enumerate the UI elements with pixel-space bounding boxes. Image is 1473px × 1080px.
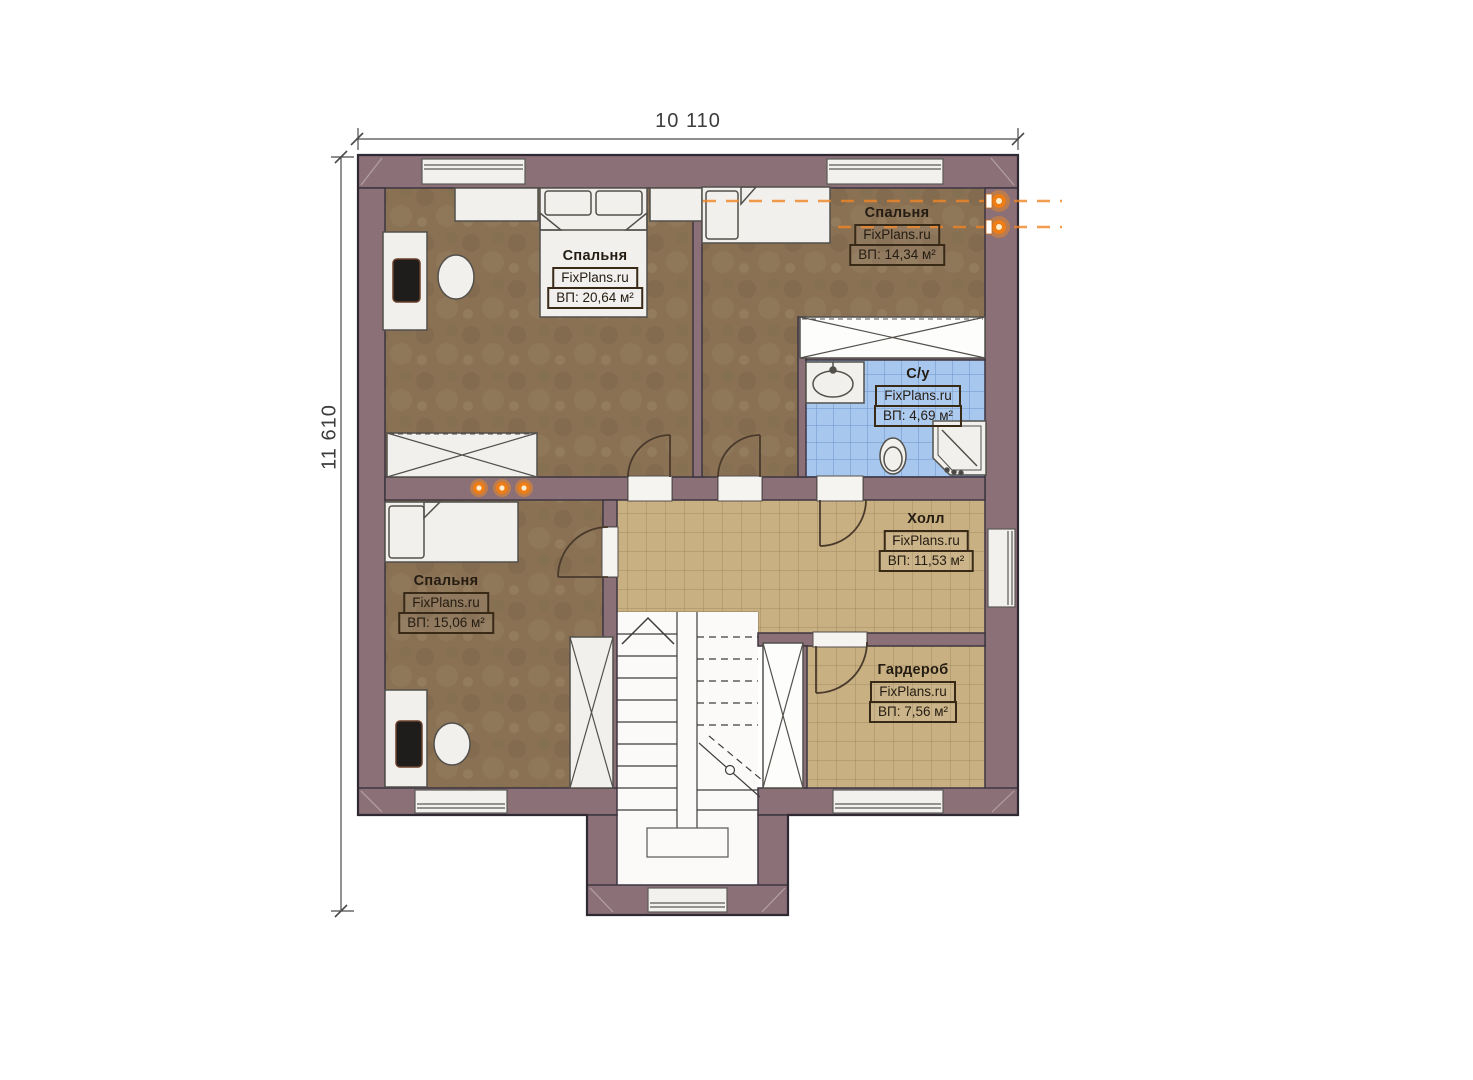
wardrobe-tl [387, 433, 537, 477]
floor-plan-page: 10 110 11 610 Спальня FixPlans.ru ВП: 20… [0, 0, 1473, 1080]
ceiling-light-3 [515, 479, 533, 497]
bed-single-bl [385, 502, 518, 562]
brand-watermark: FixPlans.ru [870, 681, 956, 703]
brand-watermark: FixPlans.ru [552, 267, 638, 289]
closet-tr [800, 317, 985, 358]
door-opening-bedroom-tl [628, 476, 672, 501]
door-opening-bedroom-tr [718, 476, 762, 501]
room-area: ВП: 15,06 м² [398, 612, 494, 634]
room-name: Спальня [865, 205, 930, 221]
wall-hall-bottom-b [867, 633, 985, 646]
bathroom-sink [806, 362, 864, 403]
brand-watermark: FixPlans.ru [403, 592, 489, 614]
floor-plan-drawing [0, 0, 1473, 1080]
room-name: С/у [906, 366, 929, 382]
window-top-1 [422, 159, 525, 184]
office-chair-tl [393, 259, 420, 302]
dresser-tl-left [455, 188, 538, 221]
door-opening-bedroom-bl [602, 527, 618, 577]
dimension-top-label: 10 110 [655, 110, 721, 133]
ceiling-light-2 [493, 479, 511, 497]
room-area: ВП: 14,34 м² [849, 244, 945, 266]
dresser-tl-right [650, 188, 702, 221]
room-area: ВП: 11,53 м² [879, 550, 974, 572]
door-opening-bathroom [817, 476, 863, 501]
dimension-left-label: 11 610 [319, 404, 342, 470]
office-chair-bl [396, 721, 422, 767]
toilet [880, 438, 906, 474]
bed-single-tr [702, 187, 830, 243]
room-name: Холл [907, 511, 945, 527]
door-opening-wardrobe [813, 632, 867, 647]
room-area: ВП: 20,64 м² [547, 287, 643, 309]
wall-mid-seg2 [672, 477, 718, 500]
floor-stairwell [617, 612, 758, 885]
room-label-wardrobe: Гардероб FixPlans.ru ВП: 7,56 м² [869, 662, 957, 723]
room-label-bedroom-top-left: Спальня FixPlans.ru ВП: 20,64 м² [547, 248, 643, 309]
stool-bl [434, 723, 470, 765]
room-label-bedroom-bottom-left: Спальня FixPlans.ru ВП: 15,06 м² [398, 573, 494, 634]
brand-watermark: FixPlans.ru [883, 530, 969, 552]
wall-mid-seg4 [863, 477, 985, 500]
ceiling-light-1 [470, 479, 488, 497]
window-top-2 [827, 159, 943, 184]
room-label-bathroom: С/у FixPlans.ru ВП: 4,69 м² [874, 366, 962, 427]
room-label-hall: Холл FixPlans.ru ВП: 11,53 м² [879, 511, 974, 572]
room-area: ВП: 7,56 м² [869, 701, 957, 723]
brand-watermark: FixPlans.ru [854, 224, 940, 246]
window-bay [648, 888, 727, 912]
wall-bl-right-a [603, 500, 617, 527]
stool-tl [438, 255, 474, 299]
room-area: ВП: 4,69 м² [874, 405, 962, 427]
room-name: Спальня [563, 248, 628, 264]
wall-right [985, 188, 1018, 815]
window-bottom-1 [415, 790, 507, 813]
dimension-left [331, 151, 354, 917]
room-label-bedroom-top-right: Спальня FixPlans.ru ВП: 14,34 м² [849, 205, 945, 266]
wall-bedroom-divider [693, 188, 702, 477]
brand-watermark: FixPlans.ru [875, 385, 961, 407]
wall-mid-seg3 [762, 477, 817, 500]
wall-left [358, 188, 385, 815]
closet-stairs [763, 643, 803, 788]
shower-corner [933, 421, 986, 475]
room-name: Спальня [414, 573, 479, 589]
window-bottom-2 [833, 790, 943, 813]
window-right-hall [988, 529, 1015, 607]
room-name: Гардероб [878, 662, 949, 678]
wardrobe-bl [570, 637, 613, 788]
